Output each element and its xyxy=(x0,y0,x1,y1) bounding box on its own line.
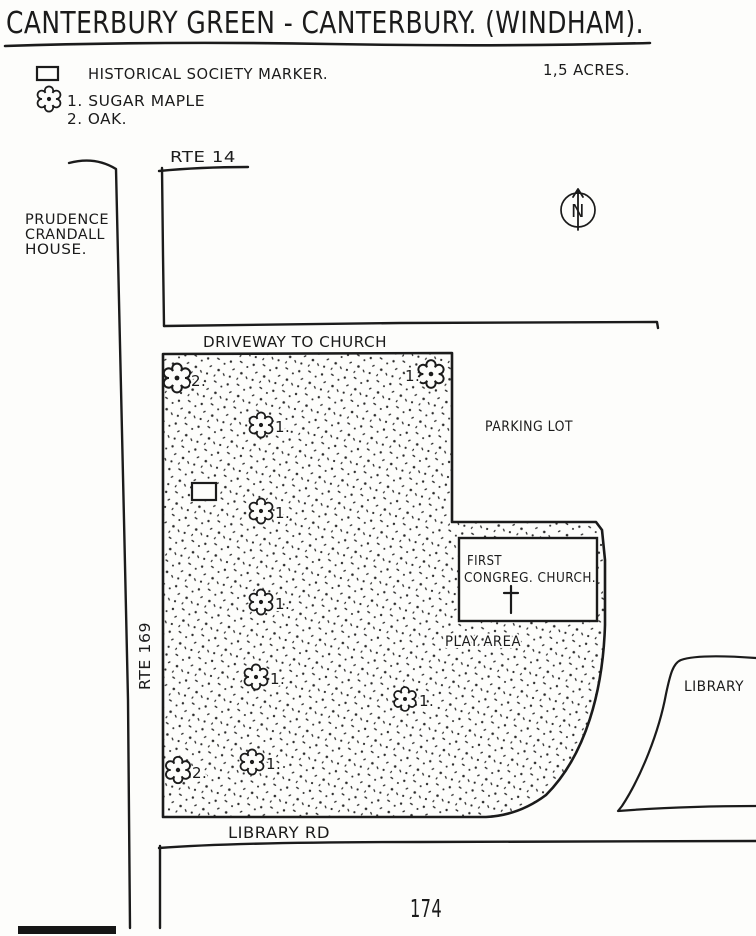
tree-flower-glyph xyxy=(245,664,268,689)
church-label-1: FIRST xyxy=(467,554,502,569)
tree-label: 1. xyxy=(266,755,281,773)
legend-tree-icon xyxy=(38,86,61,111)
tree-label: 1. xyxy=(275,595,290,613)
library-rd-line xyxy=(159,841,756,848)
map-canvas: CANTERBURY GREEN - CANTERBURY. (WINDHAM)… xyxy=(0,0,756,936)
rte14-side-line xyxy=(162,168,164,326)
church-block: FIRST CONGREG. CHURCH. xyxy=(459,538,597,621)
tree-label: 2. xyxy=(191,372,206,390)
scanned-map-page: CANTERBURY GREEN - CANTERBURY. (WINDHAM)… xyxy=(0,0,756,936)
page-title: CANTERBURY GREEN - CANTERBURY. (WINDHAM)… xyxy=(6,6,644,41)
rte14-road-line xyxy=(159,167,248,171)
parking-lot-label: PARKING LOT xyxy=(485,419,573,435)
compass-north-label: N xyxy=(571,201,585,222)
tree-symbol-sugar-maple xyxy=(245,664,268,689)
tree-symbol-sugar-maple xyxy=(394,687,416,711)
tree-flower-glyph xyxy=(164,364,190,393)
driveway-line xyxy=(164,322,658,328)
library-rd-label: LIBRARY RD xyxy=(228,823,330,842)
tree-flower-glyph xyxy=(166,757,190,783)
title-underline xyxy=(5,43,650,46)
play-area-label: PLAY AREA xyxy=(445,634,521,650)
rte169-road-line xyxy=(69,161,130,928)
tree-flower-glyph xyxy=(241,749,264,774)
legend-marker-icon xyxy=(37,67,58,80)
tree-symbol-sugar-maple xyxy=(250,589,273,614)
tree-flower-glyph xyxy=(394,687,416,711)
tree-label: 1. xyxy=(275,418,290,436)
rte169-label: RTE 169 xyxy=(136,622,154,690)
tree-flower-glyph xyxy=(250,412,273,437)
prudence-crandall-label-3: HOUSE. xyxy=(25,242,87,258)
legend-marker-label: HISTORICAL SOCIETY MARKER. xyxy=(88,65,328,83)
library-label: LIBRARY xyxy=(684,679,744,695)
tree-flower-glyph xyxy=(250,498,273,523)
tree-symbol-sugar-maple xyxy=(418,360,443,388)
tree-symbol-sugar-maple xyxy=(250,498,273,523)
tree-symbol-oak xyxy=(166,757,190,783)
legend-oak: 2. OAK. xyxy=(67,110,127,128)
tree-label: 1. xyxy=(419,692,434,710)
rte14-label: RTE 14 xyxy=(170,148,236,166)
tree-label: 1. xyxy=(405,367,420,385)
tree-label: 2. xyxy=(192,764,207,782)
tree-flower-glyph xyxy=(418,360,443,388)
driveway-label: DRIVEWAY TO CHURCH xyxy=(203,333,387,351)
tree-flower-glyph xyxy=(250,589,273,614)
legend-sugar-maple: 1. SUGAR MAPLE xyxy=(67,92,205,110)
tree-label: 1. xyxy=(275,504,290,522)
acreage-note: 1,5 ACRES. xyxy=(543,61,630,79)
scan-artifact-strip xyxy=(18,926,116,934)
prudence-crandall-label-1: PRUDENCE xyxy=(25,212,109,228)
tree-symbol-oak xyxy=(164,364,190,393)
tree-symbol-sugar-maple xyxy=(241,749,264,774)
compass-rose: N xyxy=(561,189,595,230)
tree-symbol-sugar-maple xyxy=(250,412,273,437)
tree-label: 1. xyxy=(270,670,285,688)
page-number: 174 xyxy=(410,894,442,923)
historical-marker-symbol xyxy=(192,483,216,500)
church-label-2: CONGREG. CHURCH. xyxy=(464,571,596,586)
prudence-crandall-label-2: CRANDALL xyxy=(25,227,105,243)
